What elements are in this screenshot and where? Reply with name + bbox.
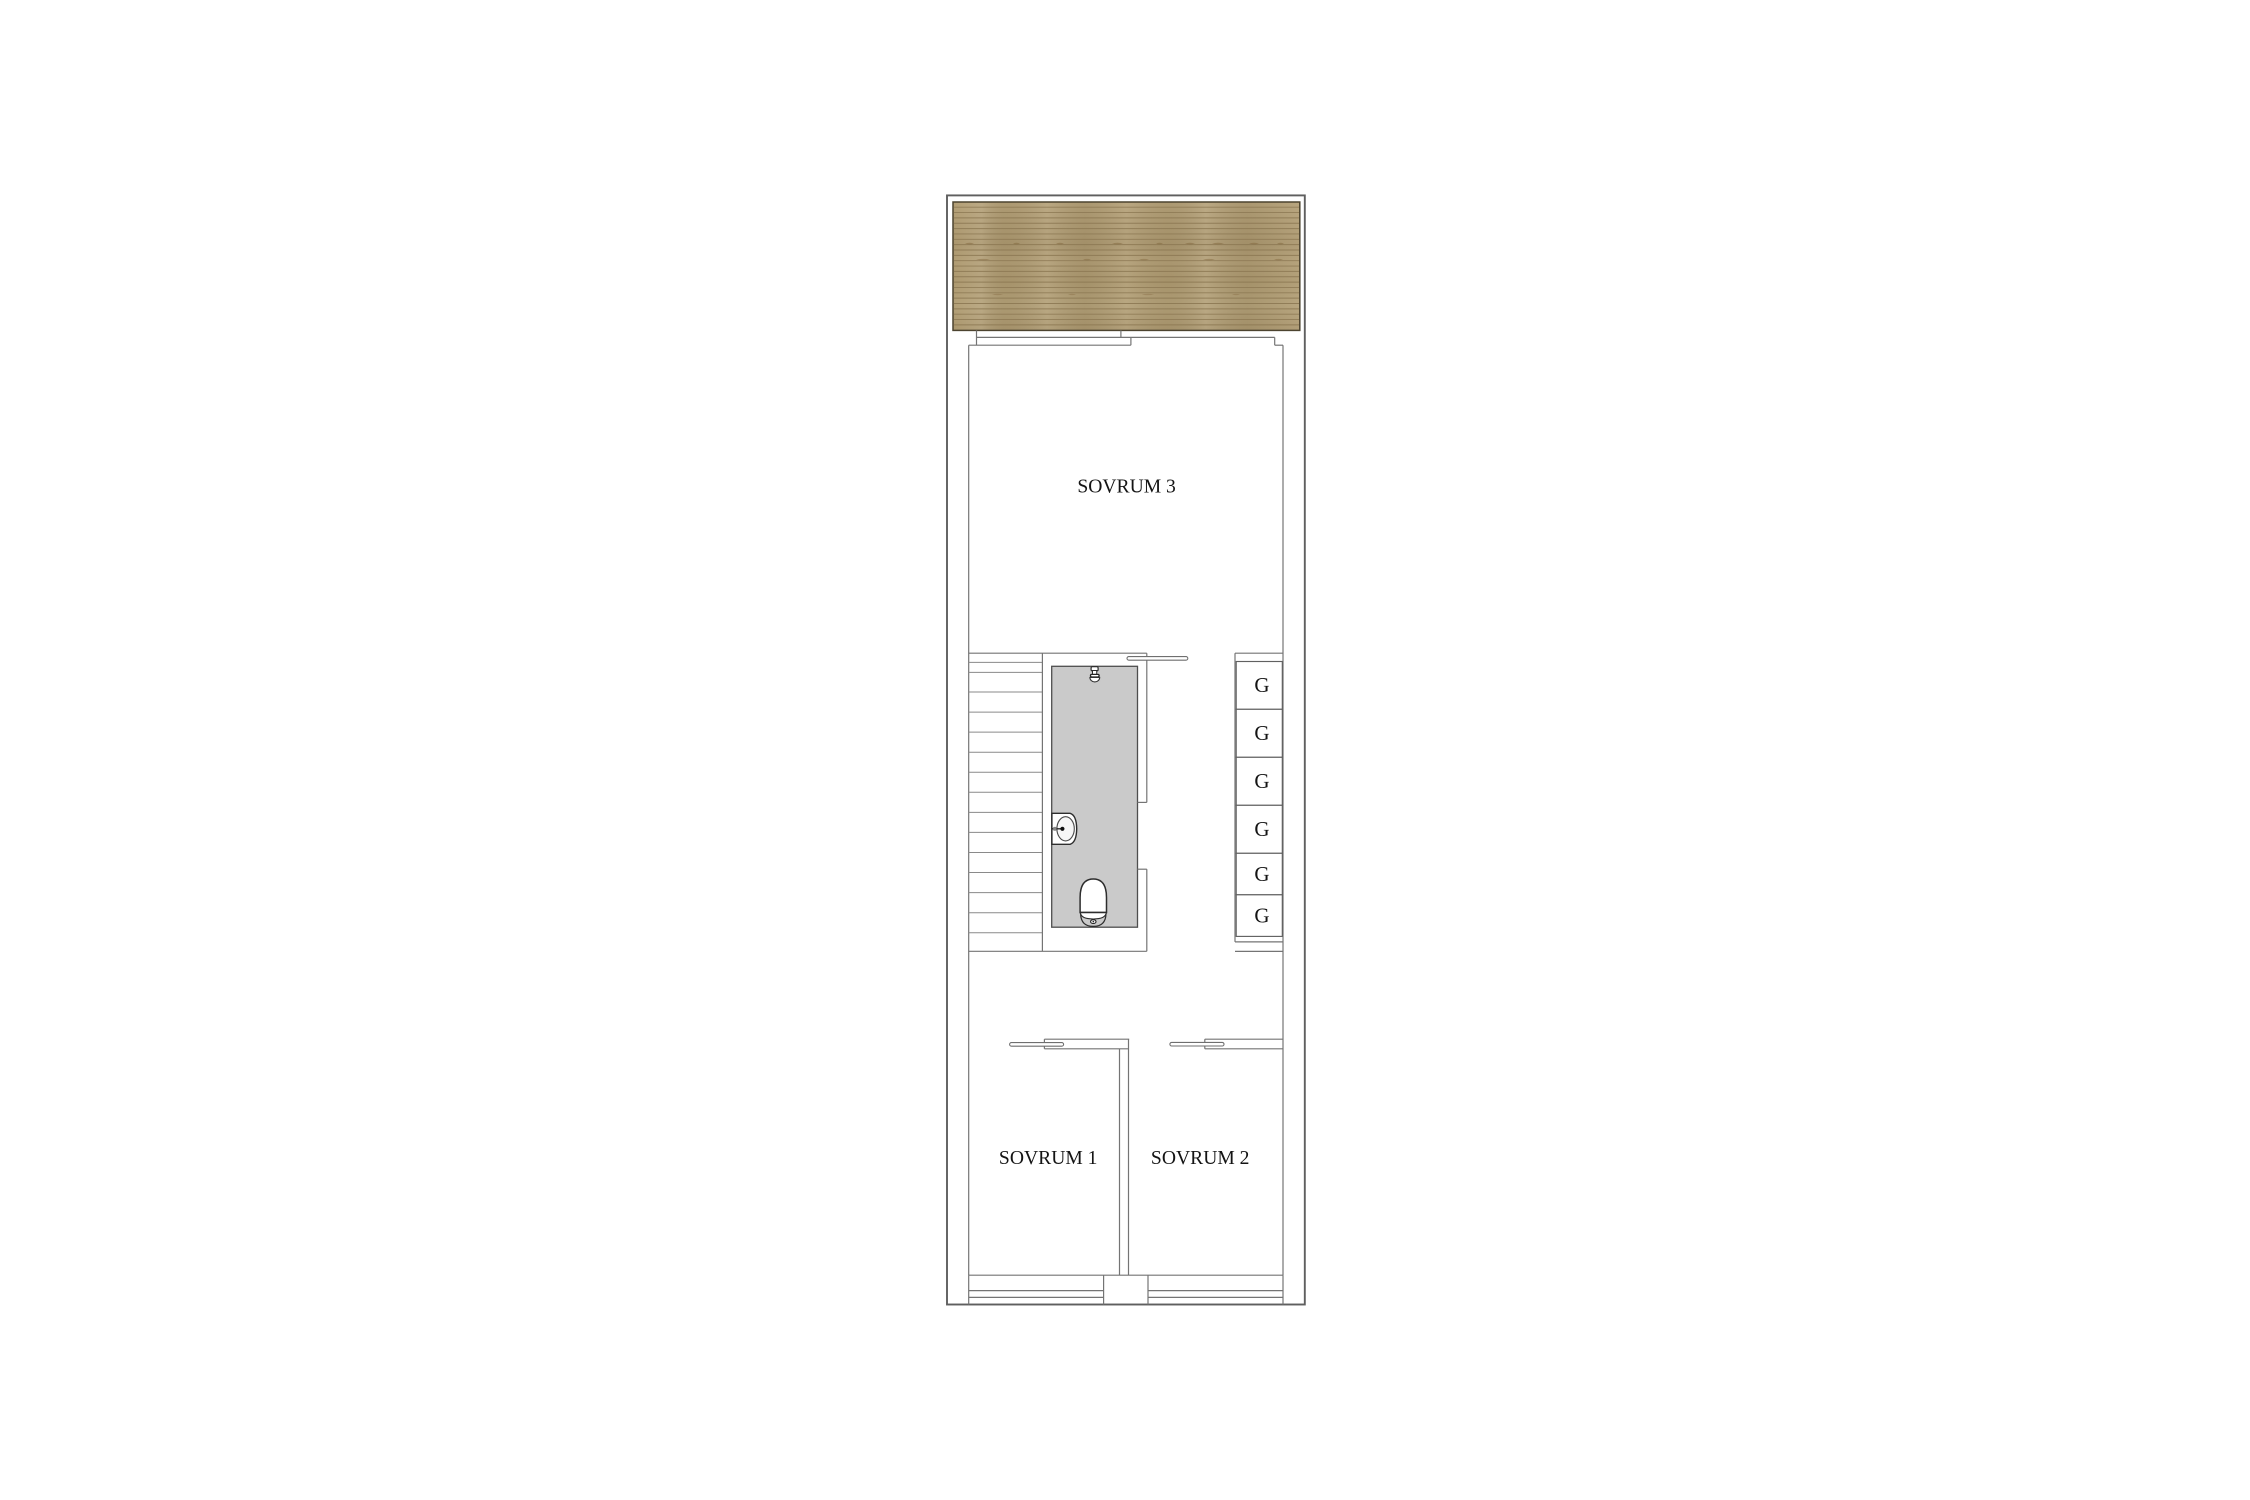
svg-text:G: G [1254, 817, 1269, 841]
svg-text:SOVRUM 2: SOVRUM 2 [1151, 1148, 1250, 1169]
svg-text:G: G [1254, 721, 1269, 745]
svg-text:G: G [1254, 862, 1269, 886]
svg-text:G: G [1254, 903, 1269, 927]
svg-text:G: G [1254, 673, 1269, 697]
svg-text:SOVRUM 3: SOVRUM 3 [1077, 477, 1176, 498]
svg-text:G: G [1254, 769, 1269, 793]
svg-text:SOVRUM 1: SOVRUM 1 [999, 1148, 1098, 1169]
